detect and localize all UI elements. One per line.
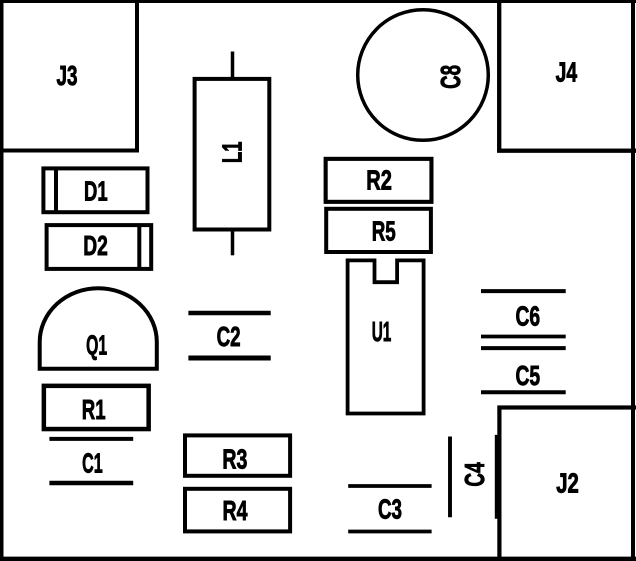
svg-text:C5: C5 (516, 360, 541, 391)
svg-text:Q1: Q1 (86, 329, 107, 360)
svg-text:D1: D1 (84, 175, 108, 206)
svg-text:R5: R5 (372, 216, 396, 247)
svg-text:R3: R3 (222, 444, 247, 475)
svg-text:R2: R2 (366, 165, 392, 196)
svg-text:C4: C4 (459, 462, 490, 487)
svg-text:U1: U1 (372, 316, 392, 347)
svg-text:C3: C3 (378, 494, 402, 525)
svg-text:L1: L1 (217, 142, 248, 164)
svg-text:J2: J2 (556, 468, 579, 499)
svg-text:C2: C2 (217, 321, 241, 352)
svg-text:J4: J4 (556, 56, 578, 87)
svg-text:R4: R4 (223, 495, 248, 526)
svg-text:R1: R1 (82, 394, 106, 425)
svg-text:C8: C8 (435, 65, 466, 89)
svg-text:D2: D2 (83, 230, 108, 261)
svg-text:J3: J3 (57, 60, 78, 91)
svg-text:C6: C6 (516, 301, 541, 332)
svg-text:C1: C1 (82, 447, 103, 478)
